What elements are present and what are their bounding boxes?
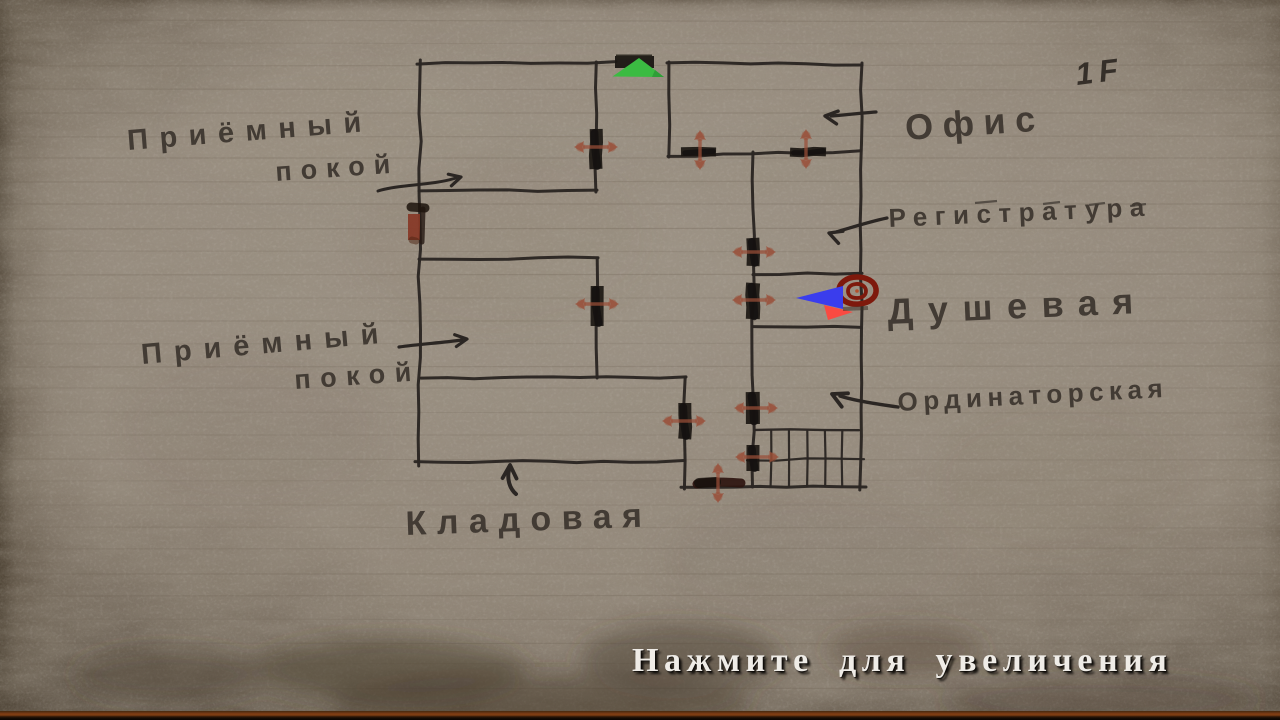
svg-text:1F: 1F [1074,51,1126,92]
